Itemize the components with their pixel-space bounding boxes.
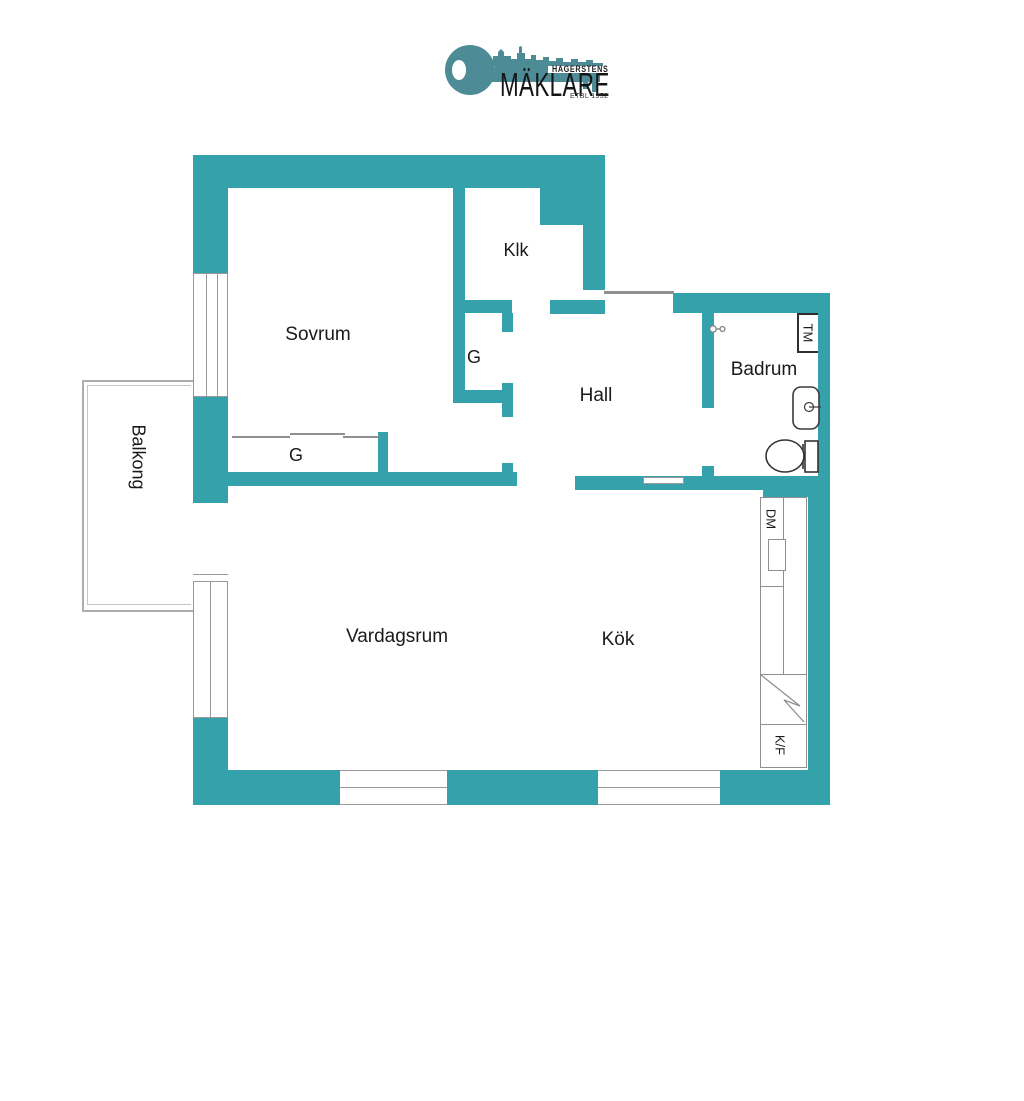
wall-gcloset-bottom-stub <box>502 383 513 417</box>
wall-kitchen-block <box>763 476 830 497</box>
wall-bottom-2 <box>447 770 598 805</box>
logo-skyline-icon <box>493 46 603 66</box>
wall-klk-bottom <box>550 300 605 314</box>
label-dishwasher: DM <box>764 509 779 529</box>
wall-klk-right <box>583 188 605 290</box>
balcony-railing <box>82 380 193 612</box>
room-label-bedroom: Sovrum <box>285 324 350 346</box>
floor-plan-page: HAGERSTENS MÄKLARE ETBL 1952 <box>0 0 1024 1101</box>
room-label-kitchen: Kök <box>602 629 635 651</box>
balcony-railing-inner <box>87 385 191 605</box>
door-handle-icon <box>707 322 729 336</box>
wardrobe-front-line <box>290 433 345 435</box>
balcony-door-threshold <box>193 574 228 582</box>
kitchen-sink <box>768 539 786 571</box>
room-label-closet-g: G <box>467 347 481 368</box>
wall-left-top <box>193 155 228 273</box>
room-label-balcony: Balkong <box>128 424 149 489</box>
wall-right-kitchen <box>808 497 830 805</box>
window-kitchen-bottom <box>598 770 720 805</box>
label-fridge-freezer: K/F <box>773 735 788 755</box>
logo-key-hole <box>452 60 466 80</box>
counter-edge-line <box>783 498 784 674</box>
room-label-walkin-closet: Klk <box>503 240 528 261</box>
wall-hall-top <box>673 293 830 313</box>
kitchen-counter <box>760 497 807 768</box>
entry-door-line <box>604 291 674 294</box>
toilet-icon <box>764 438 820 476</box>
room-label-wardrobe-g: G <box>289 445 303 466</box>
counter-section-line <box>761 586 783 587</box>
label-washing-machine: TM <box>801 324 816 343</box>
wall-top-exterior <box>193 155 605 188</box>
window-bedroom-left <box>193 273 228 397</box>
wall-klk-chunk <box>540 188 583 225</box>
window-livingroom-bottom <box>340 770 447 805</box>
room-label-bathroom: Badrum <box>731 359 798 381</box>
logo-established: ETBL 1952 <box>570 93 608 100</box>
room-label-living-room: Vardagsrum <box>346 626 448 648</box>
wall-doorway-stub <box>502 463 513 472</box>
wall-bedroom-right <box>453 188 465 403</box>
wall-hall-bathroom-stub <box>702 466 714 478</box>
wall-gcloset-bottom <box>453 390 505 403</box>
wall-left-mid <box>193 395 228 503</box>
wall-bottom-1 <box>193 770 340 805</box>
wall-bottom-3 <box>720 770 830 805</box>
room-label-hall: Hall <box>580 385 613 407</box>
window-livingroom-left <box>193 582 228 718</box>
hall-kitchen-opening <box>643 477 684 484</box>
wardrobe-front-line <box>343 436 379 438</box>
bathroom-sink-icon <box>792 386 822 430</box>
stove-icon <box>760 674 806 724</box>
stove-bottom-line <box>761 724 806 725</box>
wall-interior-left <box>228 472 517 486</box>
wall-gcloset-top-stub <box>502 313 513 332</box>
wall-gcloset-top <box>453 300 512 313</box>
wardrobe-front-line <box>232 436 290 438</box>
